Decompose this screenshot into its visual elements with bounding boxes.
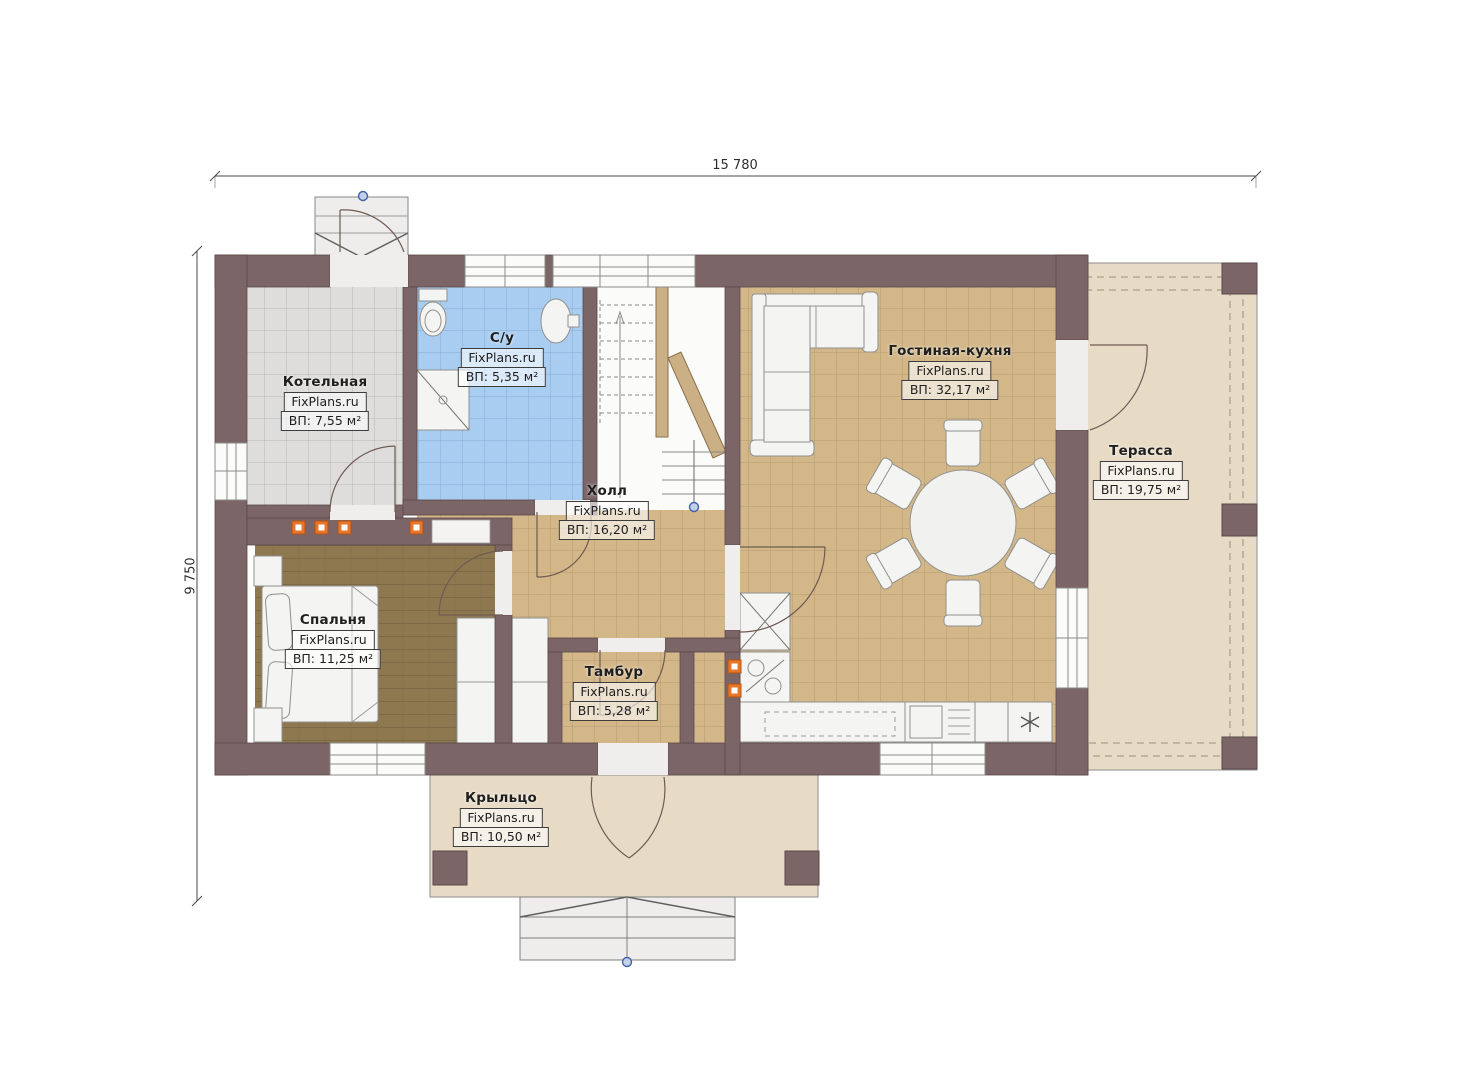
room-label-boiler: Котельная FixPlans.ru ВП: 7,55 м² [281, 374, 369, 431]
room-label-bathroom: С/у FixPlans.ru ВП: 5,35 м² [458, 330, 546, 387]
room-area: ВП: 16,20 м² [559, 520, 655, 540]
porch-steps [520, 897, 735, 960]
room-name: Крыльцо [465, 790, 537, 806]
terrace-slab [1085, 263, 1257, 770]
dimension-height-label: 9 750 [184, 557, 199, 594]
nightstand [254, 556, 282, 586]
window [465, 255, 545, 287]
entrance-canopy [315, 197, 408, 257]
room-area: ВП: 5,35 м² [458, 367, 546, 387]
watermark: FixPlans.ru [908, 361, 991, 381]
wall-niche [432, 520, 490, 543]
dishwasher-icon [905, 702, 975, 742]
window [880, 743, 985, 775]
room-area: ВП: 32,17 м² [902, 380, 998, 400]
room-label-living-kitchen: Гостиная-кухня FixPlans.ru ВП: 32,17 м² [888, 343, 1011, 400]
room-name: Холл [587, 483, 627, 499]
kitchen-sink-icon [740, 652, 790, 702]
room-name: С/у [490, 330, 514, 346]
watermark: FixPlans.ru [572, 682, 655, 702]
nightstand [254, 708, 282, 742]
chair [944, 420, 982, 466]
room-label-porch: Крыльцо FixPlans.ru ВП: 10,50 м² [453, 790, 549, 847]
room-name: Гостиная-кухня [888, 343, 1011, 359]
window [1056, 588, 1088, 688]
room-area: ВП: 5,28 м² [570, 701, 658, 721]
floor-hall [694, 648, 725, 745]
watermark: FixPlans.ru [291, 630, 374, 650]
room-area: ВП: 7,55 м² [281, 411, 369, 431]
wardrobe [457, 618, 497, 745]
window [330, 743, 425, 775]
chair [944, 580, 982, 626]
toilet-icon [419, 289, 447, 336]
room-area: ВП: 19,75 м² [1093, 480, 1189, 500]
room-area: ВП: 10,50 м² [453, 827, 549, 847]
window [215, 443, 247, 500]
window [553, 255, 695, 287]
room-name: Котельная [283, 374, 368, 390]
room-name: Терасса [1109, 443, 1173, 459]
room-name: Спальня [300, 612, 366, 628]
watermark: FixPlans.ru [1099, 461, 1182, 481]
round-table [910, 470, 1016, 576]
dimension-width-label: 15 780 [712, 158, 758, 173]
room-name: Тамбур [585, 664, 643, 680]
floor-plan-page: 15 780 9 750 Котельная FixPlans.ru ВП: 7… [0, 0, 1474, 1080]
room-label-tambur: Тамбур FixPlans.ru ВП: 5,28 м² [570, 664, 658, 721]
room-label-hall: Холл FixPlans.ru ВП: 16,20 м² [559, 483, 655, 540]
fridge-icon [1008, 702, 1052, 742]
room-label-bedroom: Спальня FixPlans.ru ВП: 11,25 м² [285, 612, 381, 669]
watermark: FixPlans.ru [460, 348, 543, 368]
watermark: FixPlans.ru [565, 501, 648, 521]
hall-closet [512, 618, 548, 745]
watermark: FixPlans.ru [459, 808, 542, 828]
stove-icon [740, 593, 790, 650]
watermark: FixPlans.ru [283, 392, 366, 412]
room-area: ВП: 11,25 м² [285, 649, 381, 669]
room-label-terrace: Терасса FixPlans.ru ВП: 19,75 м² [1093, 443, 1189, 500]
